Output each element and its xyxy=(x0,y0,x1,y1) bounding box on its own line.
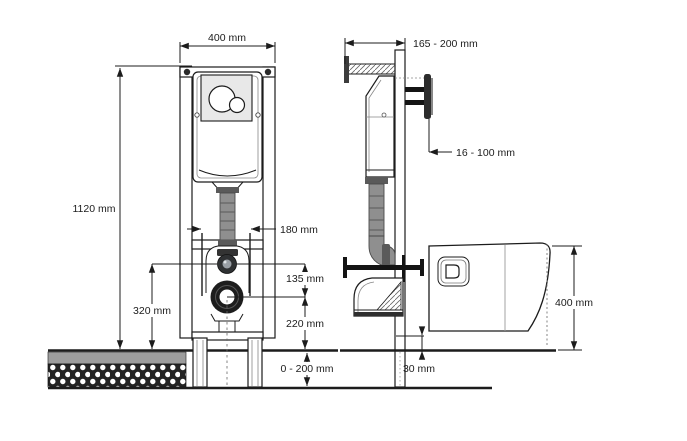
stud-end-nut xyxy=(420,259,424,276)
dim-floor-buildup-label: 30 mm xyxy=(403,363,435,375)
corner-screw-icon xyxy=(184,69,190,75)
dim-wall-clearance: 16 - 100 mm xyxy=(429,147,515,159)
dim-frame-height: 1120 mm xyxy=(73,68,121,349)
dim-extension-lines xyxy=(180,42,275,63)
dim-frame-height-label: 1120 mm xyxy=(73,203,116,215)
flush-pipe-side-flange xyxy=(365,177,388,184)
diagram-canvas: 400 mm 1120 mm 180 mm 135 mm 320 mm xyxy=(0,0,687,441)
cistern-side-screw-icon xyxy=(382,113,386,117)
support-foot-right xyxy=(248,338,262,387)
dim-inlet-to-outlet: 135 mm xyxy=(283,264,327,297)
elbow-end-flange xyxy=(382,244,390,267)
frame-left-rail xyxy=(180,67,192,338)
drain-elbow-foot xyxy=(354,312,403,316)
dim-inlet-height: 320 mm xyxy=(130,264,174,349)
dim-inlet-height-label: 320 mm xyxy=(133,305,171,317)
dim-floor-adjustment: 0 - 200 mm xyxy=(277,353,337,386)
flush-pipe-flange xyxy=(216,187,239,193)
dim-floor-adjustment-label: 0 - 200 mm xyxy=(280,363,333,375)
dim-bolt-spacing: 180 mm xyxy=(187,224,318,236)
flush-pipe-side xyxy=(369,184,384,236)
stud-front-flange xyxy=(343,257,347,278)
anchor-plate-edge xyxy=(431,78,433,115)
flush-button-small-icon xyxy=(230,98,245,113)
water-inlet-center xyxy=(223,260,232,269)
dim-bolt-spacing-label: 180 mm xyxy=(280,224,318,236)
installation-diagram: 400 mm 1120 mm 180 mm 135 mm 320 mm xyxy=(0,0,687,441)
floor-base-layer xyxy=(48,364,186,387)
plate-screw-icon xyxy=(256,113,260,117)
toilet-bowl xyxy=(429,243,550,331)
top-wall-bracket xyxy=(348,64,395,74)
water-inlet-highlight xyxy=(224,261,227,264)
side-view: 165 - 200 mm 16 - 100 mm 400 mm 30 mm xyxy=(340,38,597,387)
flush-pipe xyxy=(220,193,235,240)
anchor-rod xyxy=(405,100,424,105)
dim-inlet-to-outlet-label: 135 mm xyxy=(286,273,324,285)
dim-outlet-height-label: 220 mm xyxy=(286,318,324,330)
anchor-rod xyxy=(405,87,424,92)
plate-screw-icon xyxy=(195,113,199,117)
dim-wall-clearance-label: 16 - 100 mm xyxy=(456,147,515,159)
dim-frame-depth-label: 165 - 200 mm xyxy=(413,38,478,50)
dim-frame-width-label: 400 mm xyxy=(208,32,246,44)
floor-screed-layer xyxy=(48,352,186,364)
cistern-side xyxy=(366,76,394,177)
wall-anchor-plate xyxy=(424,74,431,119)
dim-frame-depth: 165 - 200 mm xyxy=(345,38,478,64)
fixing-stud-side xyxy=(346,265,424,270)
dim-bowl-height-label: 400 mm xyxy=(555,297,593,309)
dim-frame-width: 400 mm xyxy=(180,32,275,63)
corner-screw-icon xyxy=(265,69,271,75)
dim-outlet-height: 220 mm xyxy=(283,297,327,349)
dim-bowl-height: 400 mm xyxy=(551,246,597,350)
support-foot-left xyxy=(193,338,207,387)
